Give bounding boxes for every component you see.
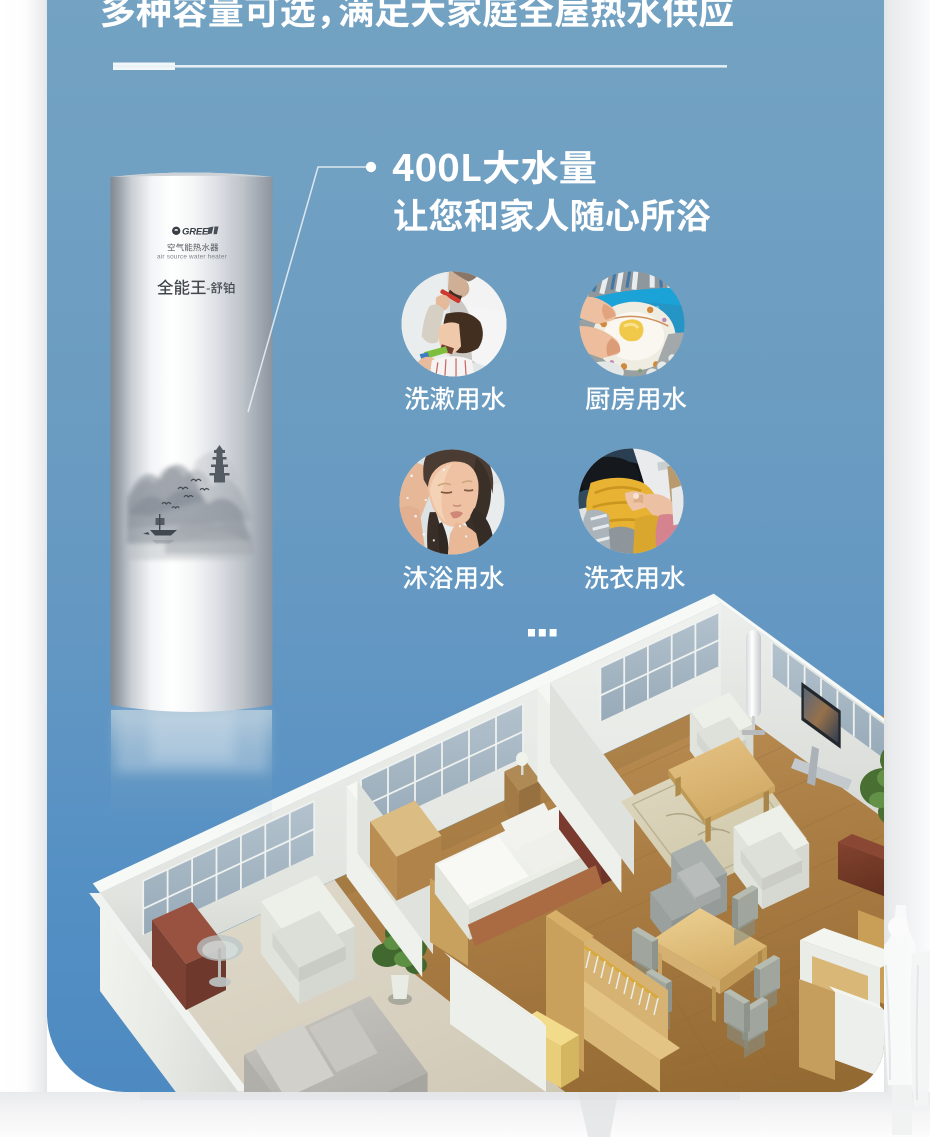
svg-text:air source water heater: air source water heater — [157, 254, 228, 261]
svg-text:GREE: GREE — [182, 227, 209, 238]
